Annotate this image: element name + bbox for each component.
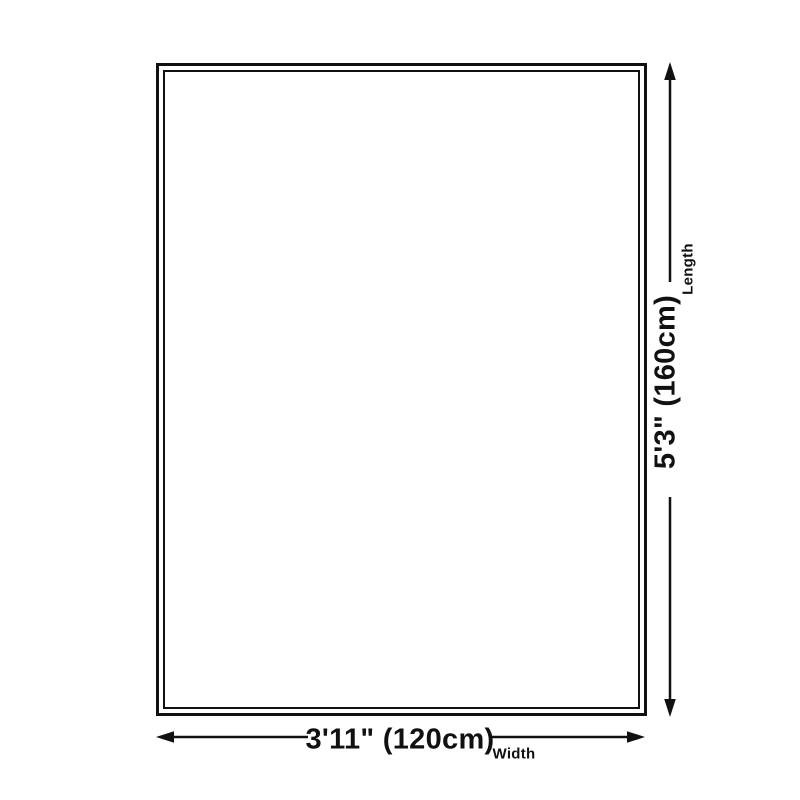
arrow-right-head [627,731,645,743]
length-axis-label: Length [680,243,697,295]
arrow-up-head [664,62,676,80]
arrow-down-head [664,699,676,717]
length-dimension-value: 5'3" (160cm) [650,295,683,469]
size-diagram: 5'3" (160cm) Length 3'11" (120cm) Width [0,0,800,800]
arrow-left-head [156,731,174,743]
width-axis-label: Width [492,746,535,763]
width-dimension-value: 3'11" (120cm) [305,724,494,757]
